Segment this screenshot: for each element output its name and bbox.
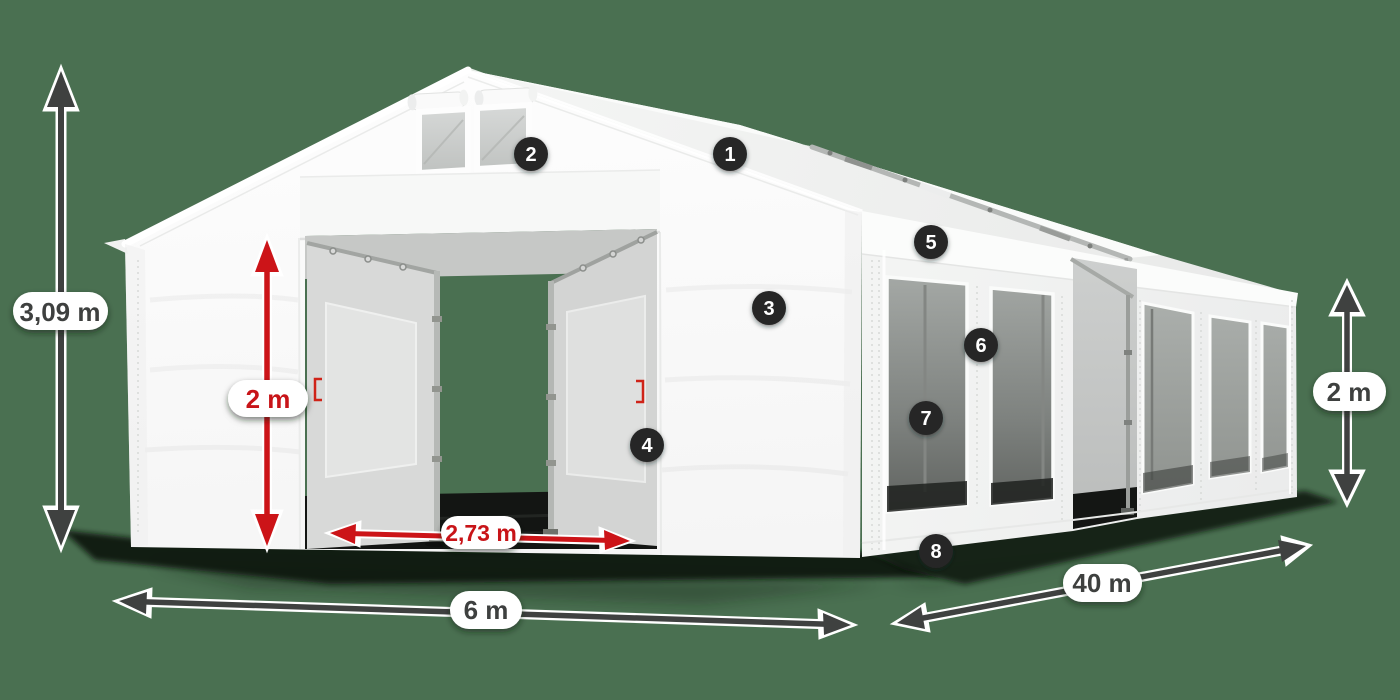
side-height-value: 2 m [1327, 377, 1372, 407]
dim-label-tent-width: 6 m [450, 591, 522, 629]
tent-dimension-diagram: 3,09 m 2 m 2,73 [0, 0, 1400, 700]
side-wall-open-bay [1071, 258, 1137, 529]
marker-8-label: 8 [930, 541, 941, 563]
marker-3-label: 3 [763, 298, 774, 320]
door-leaf-left [307, 241, 449, 549]
marker-3: 3 [752, 291, 786, 325]
dim-label-door-width: 2,73 m [441, 516, 521, 549]
marker-8: 8 [919, 534, 953, 568]
marker-6: 6 [964, 328, 998, 362]
marker-5-label: 5 [925, 232, 936, 254]
diagram-canvas: 3,09 m 2 m 2,73 [0, 0, 1400, 700]
marker-4-label: 4 [641, 435, 653, 457]
marker-2: 2 [514, 137, 548, 171]
dim-label-tent-length: 40 m [1063, 564, 1142, 602]
dim-label-side-height: 2 m [1313, 372, 1386, 411]
dim-label-door-height: 2 m [228, 380, 308, 417]
side-window-3 [1143, 303, 1193, 493]
marker-5: 5 [914, 225, 948, 259]
dim-label-total-height: 3,09 m [13, 292, 108, 330]
marker-4: 4 [630, 428, 664, 462]
door-header [300, 170, 660, 239]
side-window-2 [991, 288, 1053, 505]
marker-7-label: 7 [920, 408, 931, 430]
side-window-1 [887, 277, 967, 512]
tent-width-value: 6 m [464, 595, 509, 625]
total-height-value: 3,09 m [20, 297, 101, 327]
tent-length-value: 40 m [1072, 568, 1131, 598]
marker-6-label: 6 [975, 335, 986, 357]
marker-1-label: 1 [724, 144, 735, 166]
marker-7: 7 [909, 401, 943, 435]
door-height-value: 2 m [246, 384, 291, 414]
gable-vent-left [407, 89, 469, 173]
marker-1: 1 [713, 137, 747, 171]
side-window-4 [1210, 316, 1250, 478]
door-opening [305, 229, 657, 549]
door-width-value: 2,73 m [445, 520, 517, 546]
side-window-5 [1262, 323, 1288, 472]
marker-2-label: 2 [525, 144, 536, 166]
